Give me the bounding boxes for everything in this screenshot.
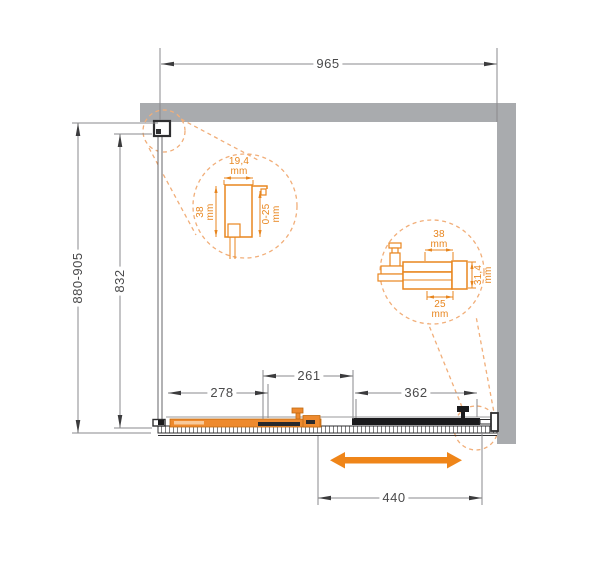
dim-total-width: 965 [313,57,342,71]
detail-left-width-label: 19,4 mm [229,157,249,177]
detail-right-height-unit: mm [484,265,494,285]
detail-right-bottom-unit: mm [431,310,448,320]
top-wall [140,103,516,122]
detail-right-profile [378,243,467,289]
slide-direction-arrow [330,452,462,469]
plan-drawing [0,0,600,564]
sliding-door-panel [170,408,321,427]
detail-left-height-unit: mm [206,203,216,220]
detail-right-height-label: 31,4 mm [474,265,494,285]
dim-opening-width: 440 [379,491,408,505]
right-wall [497,103,516,444]
dim-fixed-panel: 362 [401,386,430,400]
dim-side-glass: 832 [113,266,127,295]
detail-right-bottom-label: 25 mm [431,300,448,320]
detail-right-width-unit: mm [430,240,447,250]
wall-profile-bottom-left [153,420,165,427]
detail-left-adjust-label: 0-25 mm [262,204,282,225]
detail-left-height-label: 38 mm [196,203,216,220]
detail-left-adjust-unit: mm [272,204,282,225]
dim-door-panel: 278 [207,386,236,400]
detail-right-width-label: 38 mm [430,230,447,250]
side-glass-panel [158,136,162,421]
dim-depth-range: 880-905 [71,249,85,306]
dim-overlap: 261 [294,369,323,383]
technical-drawing-page: 965 880-905 832 278 261 362 440 19,4 mm … [0,0,600,564]
detail-left-width-unit: mm [229,167,249,177]
